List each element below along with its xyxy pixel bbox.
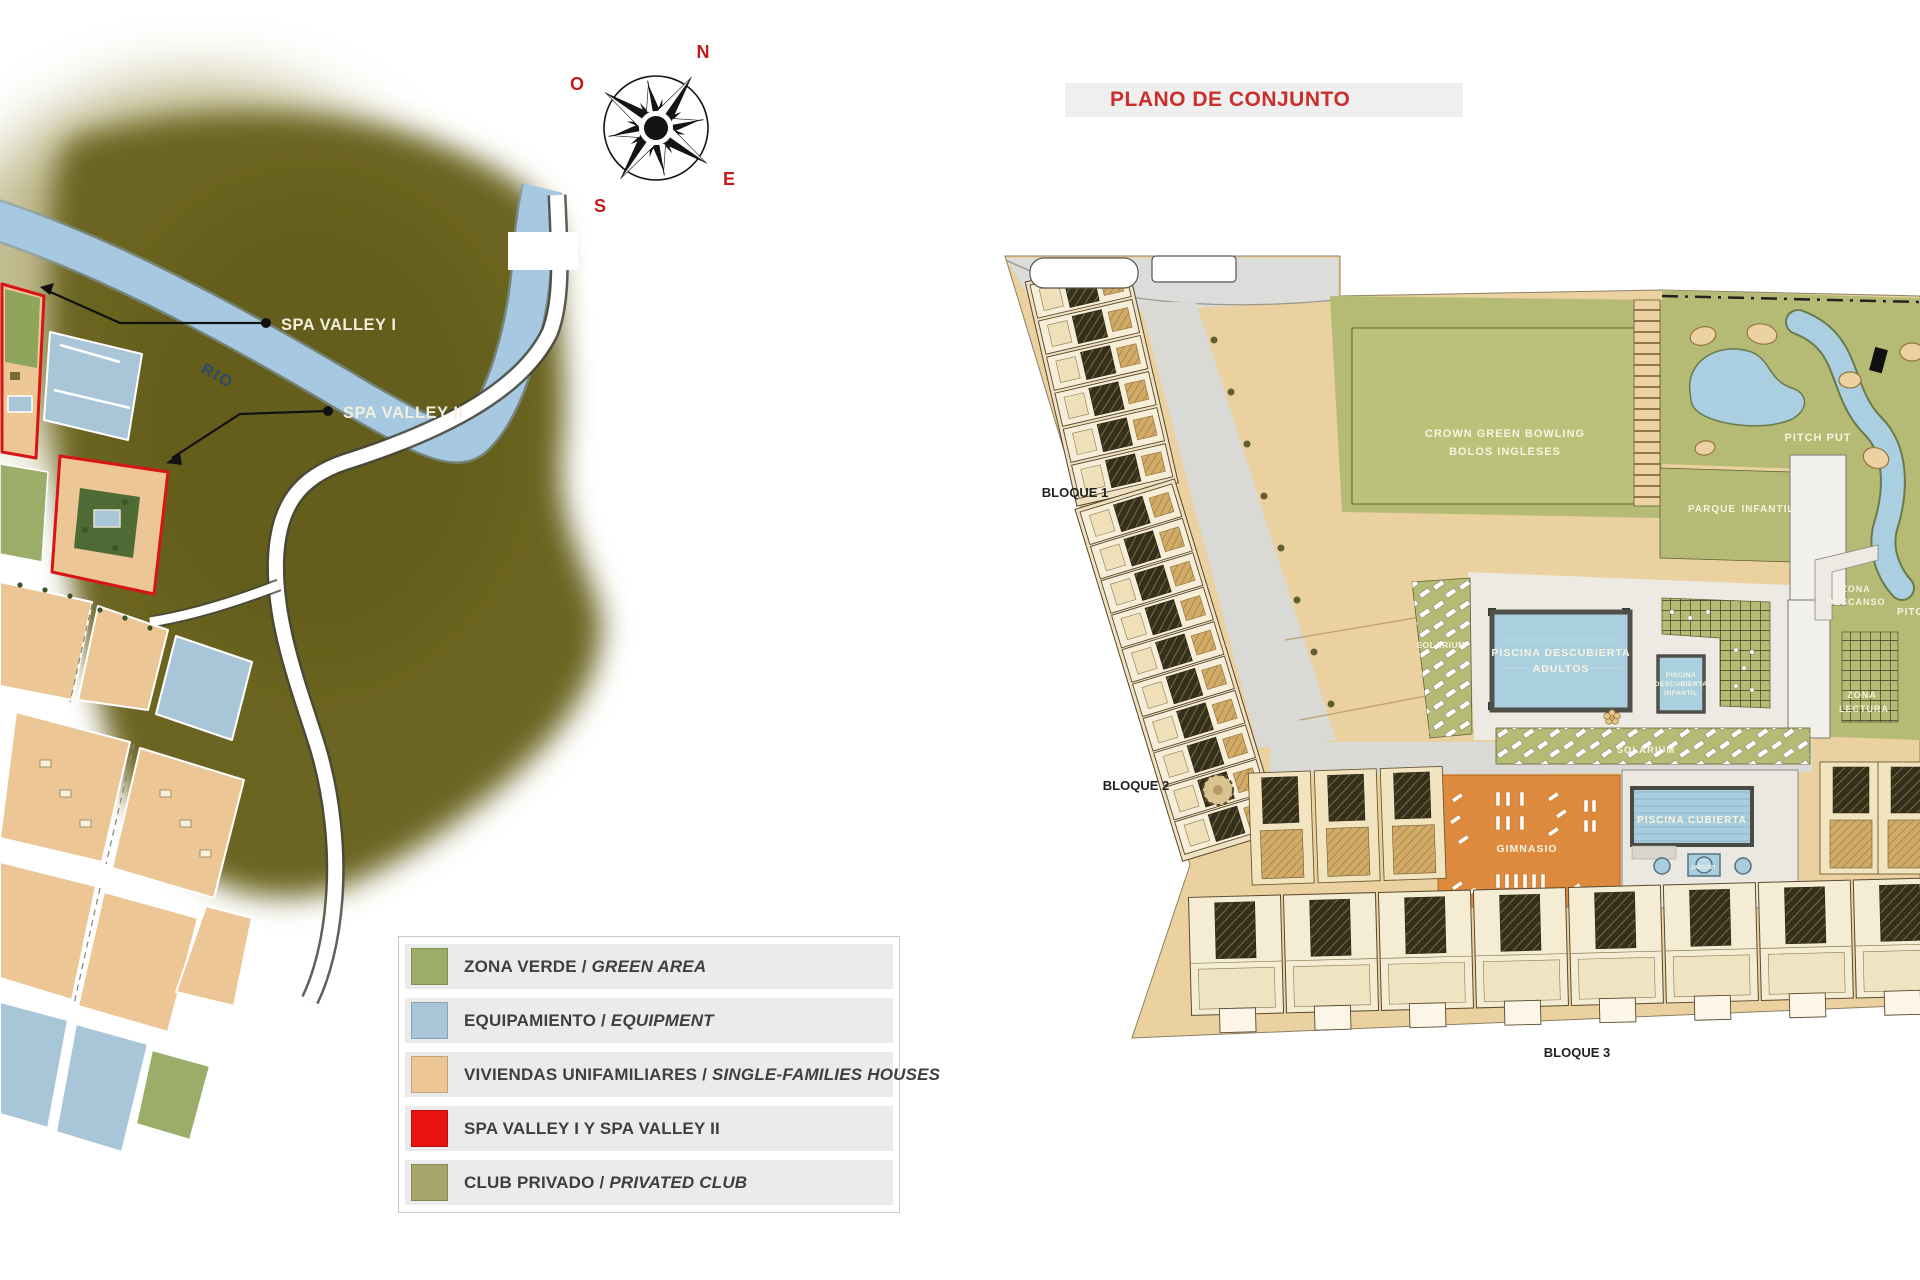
legend-item-spa-valley: SPA VALLEY I Y SPA VALLEY II xyxy=(405,1106,893,1151)
zona-lectura-label-2: LECTURA xyxy=(1839,704,1889,714)
garden-plot-east xyxy=(1820,762,1882,874)
legend-item-green-area: ZONA VERDE / GREEN AREA xyxy=(405,944,893,989)
green-parcel xyxy=(136,1050,210,1140)
pitch-put-label: PITCH PUT xyxy=(1784,432,1851,444)
compass-west-label: O xyxy=(570,74,584,94)
compass-star xyxy=(570,42,743,215)
equipment-parcel xyxy=(0,1002,68,1128)
piscina-cubierta-label: PISCINA CUBIERTA xyxy=(1637,815,1747,826)
spa1-green xyxy=(5,289,40,368)
steps-strip xyxy=(1634,300,1660,506)
map-legend: ZONA VERDE / GREEN AREA EQUIPAMIENTO / E… xyxy=(398,936,900,1213)
legend-swatch-single-families xyxy=(411,1056,448,1093)
piscina-adultos-label-2: ADULTOS xyxy=(1533,663,1590,675)
green-parcel xyxy=(0,464,48,562)
legend-label-green-area: ZONA VERDE / GREEN AREA xyxy=(464,957,706,977)
plan-title-bar: PLANO DE CONJUNTO xyxy=(1065,83,1463,117)
legend-label-private-club: CLUB PRIVADO / PRIVATED CLUB xyxy=(464,1173,747,1193)
legend-item-single-families: VIVIENDAS UNIFAMILIARES / SINGLE-FAMILIE… xyxy=(405,1052,893,1097)
legend-item-private-club: CLUB PRIVADO / PRIVATED CLUB xyxy=(405,1160,893,1205)
white-patch xyxy=(508,232,578,270)
compass-rose: N O E S xyxy=(570,42,743,216)
callout-dot xyxy=(323,406,333,416)
compass-north-label: N xyxy=(697,42,710,62)
legend-label-single-families: VIVIENDAS UNIFAMILIARES / SINGLE-FAMILIE… xyxy=(464,1065,940,1085)
bowling-green xyxy=(1352,328,1660,504)
site-plan: CROWN GREEN BOWLING BOLOS INGLESES PITCH… xyxy=(850,0,1920,1280)
crown-green-bowling-label-1: CROWN GREEN BOWLING xyxy=(1425,428,1585,440)
legend-swatch-spa-valley xyxy=(411,1110,448,1147)
legend-label-equipment: EQUIPAMIENTO / EQUIPMENT xyxy=(464,1011,714,1031)
legend-item-equipment: EQUIPAMIENTO / EQUIPMENT xyxy=(405,998,893,1043)
legend-label-spa-valley: SPA VALLEY I Y SPA VALLEY II xyxy=(464,1119,720,1139)
piscina-infantil-label-1: PISCINA xyxy=(1666,672,1696,679)
legend-swatch-private-club xyxy=(411,1164,448,1201)
parque-label: PARQUE xyxy=(1688,504,1736,515)
housing-parcel xyxy=(0,582,92,700)
solarium-south-label: SOLARIUM xyxy=(1617,745,1676,756)
parque-infantil-area xyxy=(1660,468,1792,562)
piscina-infantil-label-2: DESCUBIERTA xyxy=(1655,681,1708,688)
spa1-pool xyxy=(8,396,32,412)
solarium-west-label: SOLARIUM xyxy=(1416,640,1465,650)
crown-green-bowling-label-2: BOLOS INGLESES xyxy=(1449,446,1561,458)
housing-parcel xyxy=(0,862,96,1000)
equipment-parcel xyxy=(56,1024,148,1152)
jacuzzi-label: JACUZZI xyxy=(1691,865,1716,871)
compass-south-label: S xyxy=(594,196,606,216)
zona-descanso-label-2: DESCANSO xyxy=(1826,597,1885,607)
bloque-3-garden-plots xyxy=(1248,766,1446,885)
spa-valley-2-parcel xyxy=(52,456,168,594)
housing-parcel xyxy=(78,892,198,1032)
spa1-building xyxy=(10,372,20,380)
piscina-infantil-label-3: INFANTIL xyxy=(1664,690,1698,697)
entrance-building xyxy=(1152,256,1236,282)
infantil-label: INFANTIL xyxy=(1742,504,1795,515)
pitch-put-east-label: PITCH PUT xyxy=(1897,607,1920,618)
compass-east-label: E xyxy=(723,169,735,189)
entrance-canopy xyxy=(1030,258,1138,288)
plan-title: PLANO DE CONJUNTO xyxy=(1110,88,1350,112)
gimnasio-label: GIMNASIO xyxy=(1496,843,1557,855)
zona-lectura-label-1: ZONA xyxy=(1847,690,1877,700)
zona-descanso-label-1: ZONA xyxy=(1841,584,1871,594)
spa-valley-2-label: SPA VALLEY II xyxy=(343,404,464,422)
garden-plot-east xyxy=(1878,762,1920,874)
piscina-adultos-label-1: PISCINA DESCUBIERTA xyxy=(1491,647,1630,659)
pool-steps xyxy=(1632,846,1676,859)
east-building-b xyxy=(1788,600,1830,738)
bloque-3-label: BLOQUE 3 xyxy=(1544,1045,1610,1060)
bloque-2-label: BLOQUE 2 xyxy=(1103,778,1169,793)
callout-dot xyxy=(261,318,271,328)
spa2-pool xyxy=(94,510,120,527)
adult-pool xyxy=(1492,612,1630,710)
spa-valley-1-label: SPA VALLEY I xyxy=(281,316,396,334)
bloque-1-label: BLOQUE 1 xyxy=(1042,485,1108,500)
fountain-circle xyxy=(1203,775,1233,805)
spa-valley-1-parcel xyxy=(2,284,44,458)
legend-swatch-equipment xyxy=(411,1002,448,1039)
legend-swatch-green-area xyxy=(411,948,448,985)
